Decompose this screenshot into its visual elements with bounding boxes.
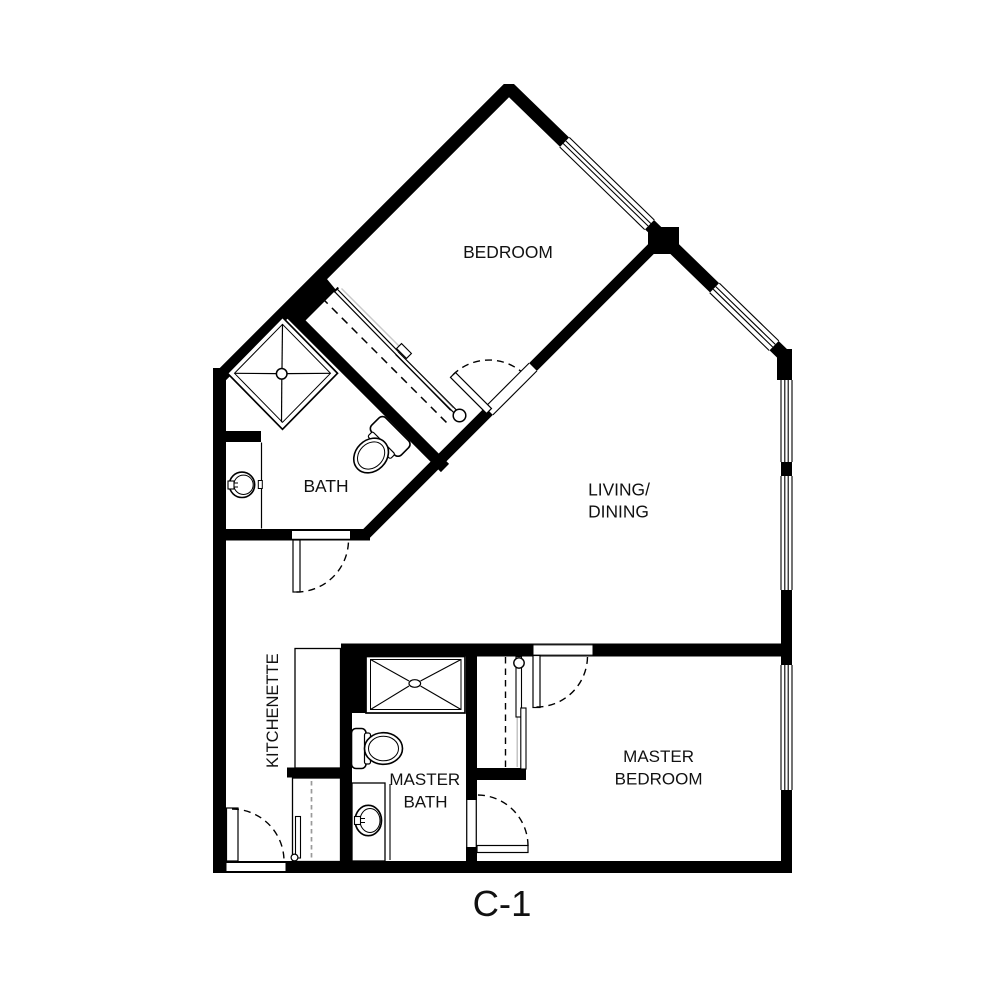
svg-text:MASTER: MASTER bbox=[623, 747, 694, 766]
svg-text:KITCHENETTE: KITCHENETTE bbox=[264, 653, 282, 768]
svg-text:DINING: DINING bbox=[588, 502, 649, 522]
svg-text:BATH: BATH bbox=[303, 476, 348, 496]
svg-text:C-1: C-1 bbox=[473, 883, 532, 924]
svg-text:BEDROOM: BEDROOM bbox=[463, 242, 553, 262]
svg-text:LIVING/: LIVING/ bbox=[588, 480, 650, 500]
svg-text:MASTER: MASTER bbox=[389, 770, 460, 789]
svg-text:BEDROOM: BEDROOM bbox=[615, 769, 703, 788]
svg-text:BATH: BATH bbox=[403, 793, 447, 812]
